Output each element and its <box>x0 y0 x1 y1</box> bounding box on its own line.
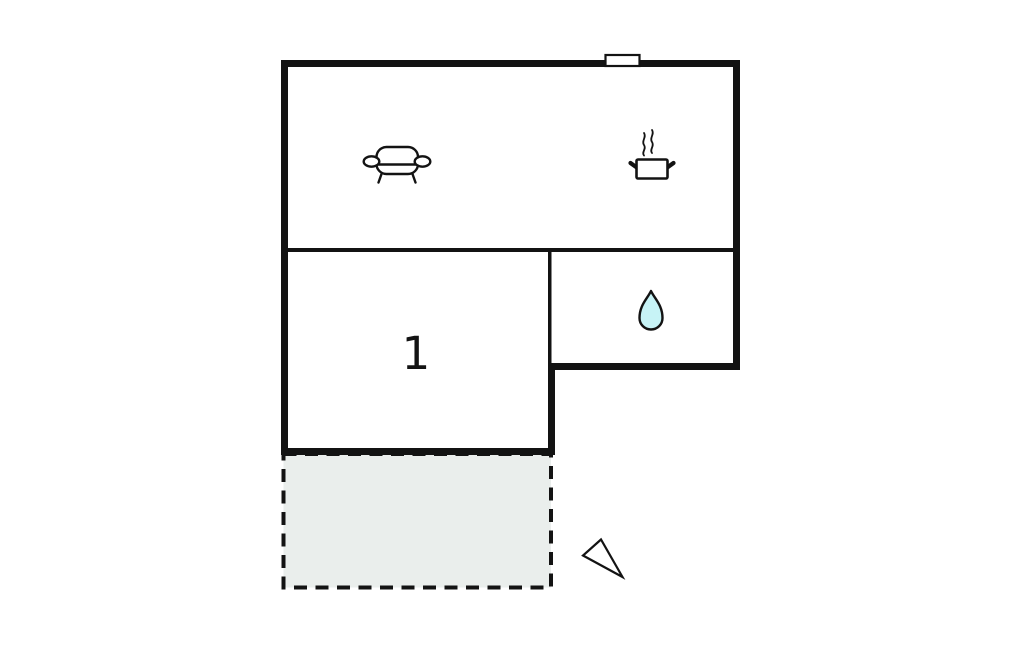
sofa-armrest-right <box>415 156 431 166</box>
sofa-icon <box>364 147 431 183</box>
floor-plan-drawing: 1 <box>0 0 1024 652</box>
steam-line-right <box>651 130 653 153</box>
room1-label: 1 <box>402 327 431 380</box>
floor-plan-page: 1 <box>0 0 1024 652</box>
terrace-area <box>284 454 552 588</box>
interior-walls <box>286 248 735 365</box>
window-marker-icon <box>606 55 640 66</box>
wall-top <box>281 60 740 67</box>
steam-line-left <box>643 133 645 156</box>
wall-bathroom-bottom <box>548 363 740 370</box>
cooking-pot-icon <box>631 130 674 179</box>
water-drop-icon <box>640 291 663 330</box>
wall-step-vertical <box>548 363 555 455</box>
divider-vertical <box>548 250 552 365</box>
steam-lines-icon <box>643 130 653 156</box>
north-arrow-icon <box>583 540 623 578</box>
outer-walls <box>281 60 740 455</box>
wall-right <box>733 60 740 370</box>
wall-left <box>281 60 288 455</box>
sofa-leg-right <box>413 174 416 183</box>
sofa-armrest-left <box>364 156 380 166</box>
sofa-leg-left <box>379 174 382 183</box>
divider-horizontal <box>286 248 735 252</box>
pot-body <box>637 160 668 179</box>
wall-room1-bottom <box>281 448 555 455</box>
sofa-body <box>377 147 419 174</box>
